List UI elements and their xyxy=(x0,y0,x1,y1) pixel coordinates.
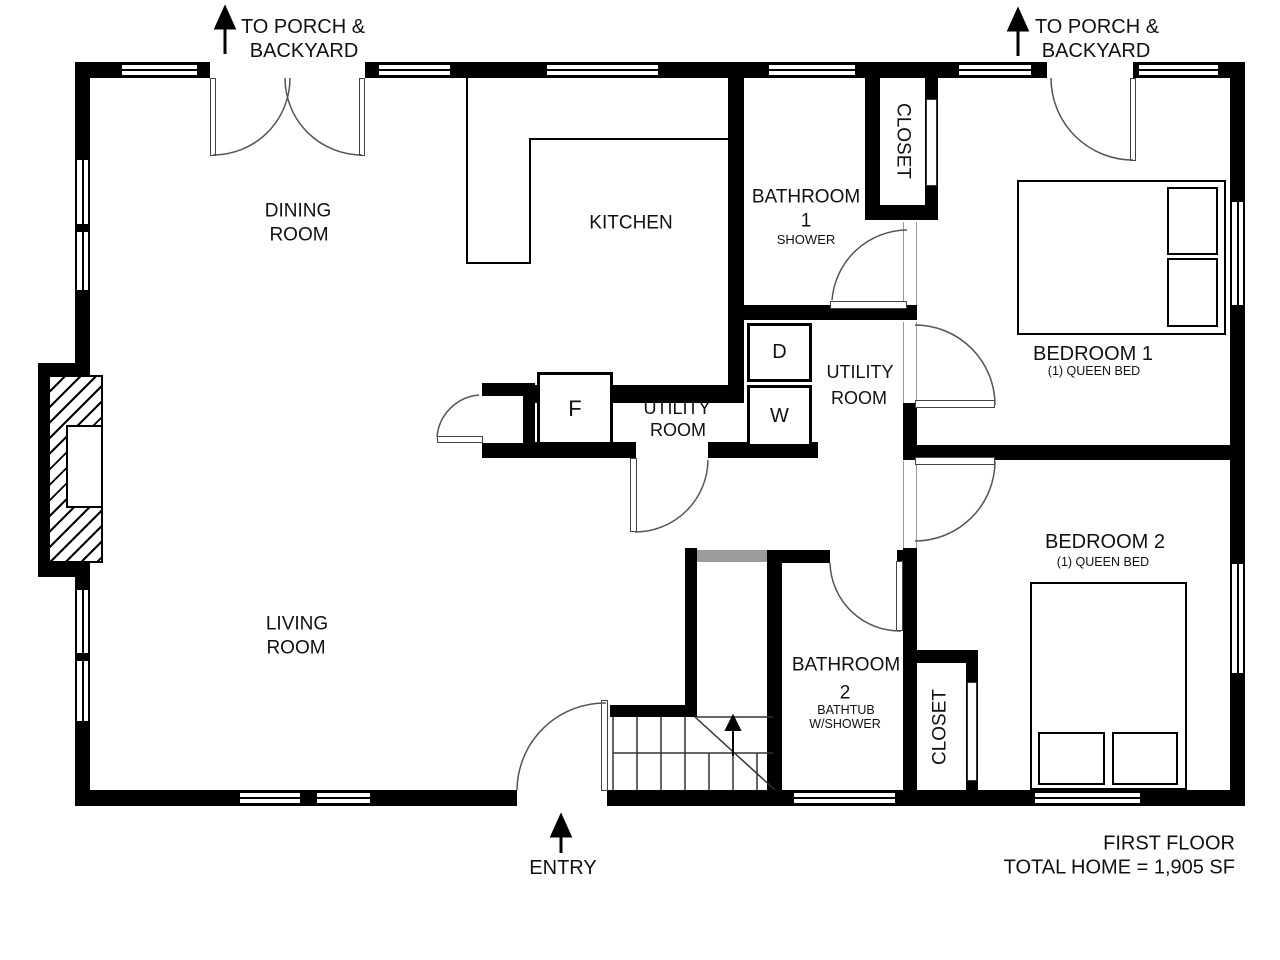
utility-laundry-label-line2: ROOM xyxy=(831,389,887,409)
bedroom2-note: (1) QUEEN BED xyxy=(1057,556,1149,570)
bedroom2-pillow xyxy=(1112,732,1178,785)
wall-stair-north xyxy=(610,705,697,717)
porch-right-label-line2: BACKYARD xyxy=(1042,40,1151,62)
entry-label: ENTRY xyxy=(529,857,596,879)
window xyxy=(75,158,90,226)
porch-right-arrow-icon xyxy=(1009,10,1027,56)
niche-door-arc xyxy=(437,395,479,437)
window xyxy=(1137,63,1220,77)
wall-bath2-top xyxy=(767,550,830,563)
closet2-door xyxy=(967,682,977,781)
bath1-vestibule-opening xyxy=(903,222,917,305)
bedroom1-door-arc xyxy=(915,325,995,405)
utility-hall-door-leaf xyxy=(630,458,637,532)
floor-title: FIRST FLOOR xyxy=(1103,833,1235,856)
bathroom2-note1: BATHTUB xyxy=(817,704,874,718)
stair-half-wall xyxy=(697,550,767,562)
porch-door-opening xyxy=(1047,62,1133,78)
wall-bath2-left xyxy=(767,550,782,793)
french-door-arc-left xyxy=(213,78,290,155)
bedroom1-label: BEDROOM 1 xyxy=(1033,343,1153,365)
bathroom1-label: BATHROOM xyxy=(752,188,860,209)
dryer-label: D xyxy=(772,341,786,364)
bedroom1-door-opening xyxy=(903,322,917,403)
porch-left-label-line2: BACKYARD xyxy=(250,40,359,62)
bathroom1-note: SHOWER xyxy=(777,233,836,247)
bedroom1-door-leaf xyxy=(915,400,995,408)
bedroom2-door-opening xyxy=(903,461,917,548)
niche-interior xyxy=(482,396,523,443)
bedroom1-pillow xyxy=(1167,258,1218,327)
bathroom2-number: 2 xyxy=(840,684,851,705)
window xyxy=(1230,200,1245,307)
window xyxy=(377,63,452,77)
window xyxy=(545,63,660,77)
dining-room-label-line2: ROOM xyxy=(269,226,328,247)
bathroom2-note2: W/SHOWER xyxy=(809,718,881,732)
floor-plan: F D W xyxy=(0,0,1280,960)
utility-laundry-label-line1: UTILITY xyxy=(826,363,893,383)
niche-door-leaf xyxy=(437,436,483,443)
wall-stair-east xyxy=(685,548,697,717)
entry-door-opening xyxy=(517,790,607,806)
washer-box: W xyxy=(747,385,812,447)
dining-room-label-line1: DINING xyxy=(265,202,332,223)
stair-break-line xyxy=(695,717,775,790)
bedroom2-pillow xyxy=(1038,732,1105,785)
utility-hall-label-line1: UTILITY xyxy=(643,399,710,419)
living-room-label-line1: LIVING xyxy=(266,615,328,636)
window xyxy=(75,588,90,655)
wall-right xyxy=(1230,62,1245,806)
kitchen-counter xyxy=(467,78,728,263)
porch-door-arc xyxy=(1051,78,1133,160)
washer-label: W xyxy=(770,405,789,428)
entry-door-arc xyxy=(517,703,606,790)
entry-arrow-icon xyxy=(552,816,570,853)
bathroom2-label: BATHROOM xyxy=(792,656,900,677)
bathroom2-door-arc xyxy=(830,563,901,631)
porch-door-leaf xyxy=(1130,78,1136,161)
living-room-label-line2: ROOM xyxy=(266,639,325,660)
bathroom1-door-leaf xyxy=(830,301,907,309)
furnace-label: F xyxy=(568,396,581,422)
utility-hall-label-line2: ROOM xyxy=(650,421,706,441)
bathroom1-number: 1 xyxy=(801,212,812,233)
french-door-arc-right xyxy=(285,78,362,155)
wall-utility-divider xyxy=(728,315,744,387)
window xyxy=(75,230,90,292)
window xyxy=(75,659,90,723)
entry-door-leaf xyxy=(601,700,608,791)
wall-spine-mid xyxy=(903,403,917,447)
window xyxy=(120,63,199,77)
porch-right-label-line1: TO PORCH & xyxy=(1035,16,1159,38)
porch-left-arrow-icon xyxy=(216,8,234,54)
window xyxy=(957,63,1033,77)
wall-closet1-left xyxy=(865,78,880,220)
french-door-leaf-left xyxy=(210,78,216,156)
plan-linework xyxy=(0,0,1280,960)
window xyxy=(1033,791,1142,805)
french-door-opening xyxy=(210,62,365,78)
bedroom2-door-arc xyxy=(915,461,995,541)
staircase xyxy=(613,717,775,790)
window xyxy=(1230,562,1245,675)
closet-lower-label: CLOSET xyxy=(931,689,952,765)
wall-spine-lower xyxy=(903,548,917,793)
porch-left-label-line1: TO PORCH & xyxy=(241,16,365,38)
bedroom1-note: (1) QUEEN BED xyxy=(1048,365,1140,379)
closet-upper-label: CLOSET xyxy=(892,103,913,179)
furnace-box: F xyxy=(537,372,613,445)
wall-kitchen-bath1 xyxy=(728,78,744,320)
bedroom2-door-leaf xyxy=(915,457,995,465)
bedroom1-pillow xyxy=(1167,187,1218,255)
kitchen-label: KITCHEN xyxy=(589,214,672,235)
fireplace-firebox xyxy=(66,425,103,508)
window xyxy=(315,791,372,805)
bathroom2-door-leaf xyxy=(896,561,903,631)
window xyxy=(792,791,897,805)
closet1-door xyxy=(926,99,937,186)
window xyxy=(767,63,857,77)
total-area: TOTAL HOME = 1,905 SF xyxy=(1004,857,1235,880)
bathroom1-door-arc xyxy=(832,230,907,300)
utility-hall-door-arc xyxy=(635,460,708,532)
french-door-leaf-right xyxy=(359,78,365,156)
bedroom2-label: BEDROOM 2 xyxy=(1045,531,1165,553)
stair-up-arrow-icon xyxy=(726,716,740,756)
dryer-box: D xyxy=(747,323,812,382)
window xyxy=(238,791,302,805)
